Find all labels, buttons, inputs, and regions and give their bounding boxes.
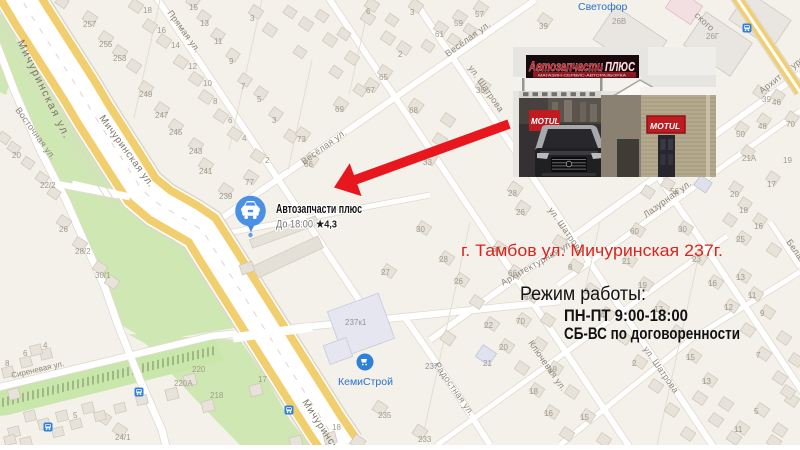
svg-text:11: 11 [734,425,743,434]
svg-text:220: 220 [192,365,206,374]
svg-text:25: 25 [736,235,745,244]
svg-text:239: 239 [219,192,233,201]
svg-text:5: 5 [257,95,262,104]
svg-text:17: 17 [767,180,776,189]
svg-text:15: 15 [189,3,198,12]
svg-text:Режим работы:: Режим работы: [520,284,646,305]
svg-text:18: 18 [529,387,538,396]
svg-text:MOTUL: MOTUL [650,121,680,131]
svg-text:30: 30 [678,225,687,234]
svg-text:26В: 26В [612,17,626,26]
svg-text:233: 233 [418,435,432,444]
svg-text:17: 17 [258,375,267,384]
svg-text:2: 2 [398,50,403,59]
svg-text:8: 8 [213,97,218,106]
svg-text:61: 61 [435,30,444,39]
svg-text:57: 57 [475,10,484,19]
svg-text:11: 11 [214,37,223,46]
svg-text:MOTUL: MOTUL [531,117,560,126]
svg-text:237к1: 237к1 [345,318,367,327]
svg-text:5: 5 [73,411,78,420]
svg-text:21А: 21А [742,154,757,163]
svg-text:15: 15 [686,353,695,362]
svg-text:До 18:00: До 18:00 [276,219,313,231]
svg-text:16: 16 [754,222,763,231]
svg-text:24/1: 24/1 [115,433,131,442]
svg-text:★4,3: ★4,3 [316,219,337,231]
svg-text:3: 3 [272,116,277,125]
svg-text:26: 26 [516,208,525,217]
svg-text:257: 257 [83,20,97,29]
svg-text:70: 70 [786,120,795,129]
svg-text:67: 67 [366,86,375,95]
svg-text:73: 73 [297,135,306,144]
svg-text:15: 15 [580,413,589,422]
svg-text:39: 39 [539,22,548,31]
svg-text:27: 27 [381,268,390,277]
svg-text:247: 247 [155,111,169,120]
svg-text:28/2: 28/2 [75,247,91,256]
svg-text:241: 241 [199,167,213,176]
svg-text:253: 253 [113,54,127,63]
svg-text:11: 11 [748,291,757,300]
svg-text:28: 28 [508,189,517,198]
svg-text:10: 10 [203,79,212,88]
svg-text:Светофор: Светофор [578,1,628,13]
svg-text:14: 14 [171,41,180,50]
svg-text:3: 3 [250,14,255,23]
svg-text:8: 8 [568,263,573,272]
svg-text:16: 16 [708,279,717,288]
svg-text:20: 20 [730,190,739,199]
svg-text:26: 26 [59,225,68,234]
svg-text:7: 7 [241,82,246,91]
svg-text:255: 255 [99,40,113,49]
svg-text:3: 3 [410,8,415,17]
svg-text:КемиСтрой: КемиСтрой [338,376,393,388]
svg-text:30/1: 30/1 [95,271,111,280]
svg-text:12: 12 [188,62,197,71]
svg-text:18: 18 [332,423,341,432]
svg-text:21: 21 [483,359,492,368]
svg-text:МАГАЗИН·СЕРВИС·АВТОРАЗБОРКА: МАГАЗИН·СЕРВИС·АВТОРАЗБОРКА [538,73,626,78]
svg-text:69: 69 [335,105,344,114]
svg-text:20: 20 [499,343,508,352]
svg-text:22/2: 22/2 [40,181,56,190]
svg-text:7: 7 [756,351,761,360]
svg-text:68: 68 [409,106,418,115]
svg-text:22: 22 [484,321,493,330]
svg-text:30: 30 [416,225,425,234]
svg-text:8: 8 [5,359,10,368]
svg-text:12: 12 [724,303,733,312]
svg-text:16: 16 [544,409,553,418]
svg-text:9: 9 [229,57,234,66]
svg-text:2: 2 [632,359,637,368]
svg-text:Автозапчасти плюс: Автозапчасти плюс [276,201,362,216]
svg-text:ПН-ПТ 9:00-18:00: ПН-ПТ 9:00-18:00 [564,306,688,325]
svg-text:18: 18 [739,206,748,215]
svg-text:249: 249 [139,90,153,99]
svg-text:г. Тамбов ул. Мичуринская 237г: г. Тамбов ул. Мичуринская 237г. [461,242,723,260]
svg-text:243: 243 [189,147,203,156]
svg-text:48: 48 [758,122,767,131]
svg-text:218: 218 [210,391,224,400]
svg-text:70: 70 [516,317,525,326]
svg-text:18: 18 [143,6,152,15]
svg-text:6: 6 [366,7,371,16]
svg-text:6: 6 [228,116,233,125]
svg-text:220А: 220А [174,379,193,388]
svg-text:77: 77 [245,178,254,187]
svg-text:39: 39 [762,95,771,104]
svg-text:13: 13 [200,19,209,28]
svg-text:46: 46 [772,98,781,107]
svg-text:4: 4 [242,134,247,143]
svg-text:16: 16 [157,26,166,35]
svg-text:235: 235 [378,411,392,420]
svg-text:65: 65 [379,73,388,82]
svg-text:2: 2 [265,156,270,165]
svg-text:26Г: 26Г [706,32,720,41]
svg-text:245: 245 [169,128,183,137]
svg-text:13: 13 [736,273,745,282]
svg-text:59: 59 [454,19,463,28]
svg-text:13: 13 [702,377,711,386]
svg-text:60: 60 [630,227,639,236]
svg-text:28: 28 [439,255,448,264]
svg-text:4: 4 [43,341,48,350]
svg-text:50: 50 [736,130,745,139]
svg-text:19: 19 [783,156,792,165]
svg-text:6: 6 [23,349,28,358]
svg-text:9: 9 [760,309,765,318]
svg-text:СБ-ВС по договоренности: СБ-ВС по договоренности [564,324,740,343]
svg-text:5: 5 [754,407,759,416]
svg-text:20: 20 [12,151,21,160]
svg-text:26: 26 [454,277,463,286]
